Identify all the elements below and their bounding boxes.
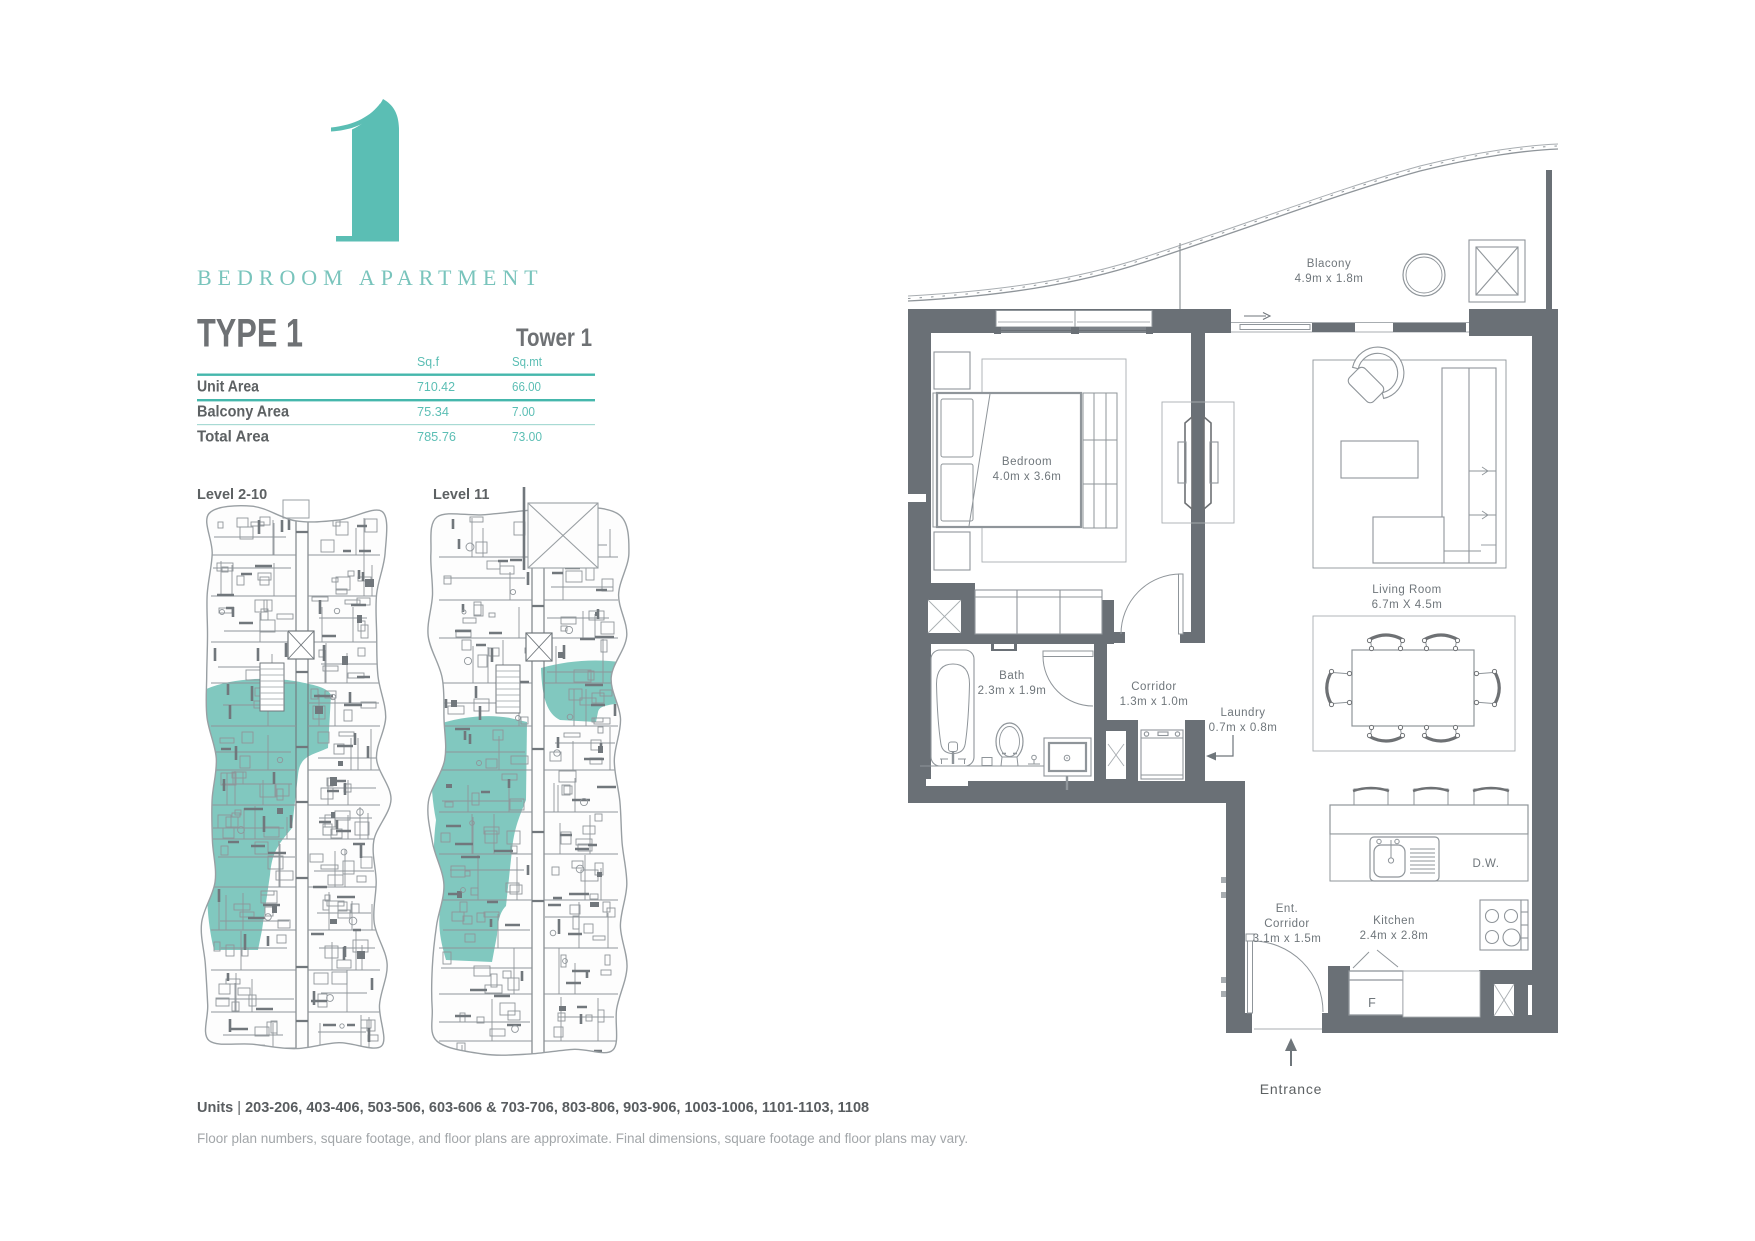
svg-text:Corridor: Corridor	[1131, 681, 1177, 693]
svg-text:Living Room: Living Room	[1372, 584, 1441, 596]
svg-text:Bath: Bath	[999, 670, 1025, 682]
svg-text:2.4m x 2.8m: 2.4m x 2.8m	[1360, 930, 1429, 942]
svg-text:4.0m x 3.6m: 4.0m x 3.6m	[993, 471, 1062, 483]
svg-text:2.3m x 1.9m: 2.3m x 1.9m	[978, 685, 1047, 697]
svg-text:3.1m x 1.5m: 3.1m x 1.5m	[1253, 933, 1322, 945]
svg-text:Blacony: Blacony	[1307, 258, 1351, 270]
svg-text:Kitchen: Kitchen	[1373, 915, 1415, 927]
svg-text:Sq.f: Sq.f	[417, 354, 439, 369]
svg-text:4.9m x 1.8m: 4.9m x 1.8m	[1295, 273, 1364, 285]
svg-text:D.W.: D.W.	[1473, 858, 1500, 870]
svg-text:Total Area: Total Area	[197, 429, 269, 446]
svg-text:Unit Area: Unit Area	[197, 379, 259, 396]
svg-text:66.00: 66.00	[512, 379, 541, 394]
svg-text:Floor plan numbers, square foo: Floor plan numbers, square footage, and …	[197, 1131, 968, 1146]
svg-text:0.7m x 0.8m: 0.7m x 0.8m	[1209, 722, 1278, 734]
svg-text:TYPE 1: TYPE 1	[197, 312, 303, 356]
svg-text:Units | 203-206, 403-406, 503-: Units | 203-206, 403-406, 503-506, 603-6…	[197, 1100, 869, 1116]
svg-text:Balcony Area: Balcony Area	[197, 404, 289, 421]
svg-text:Tower 1: Tower 1	[516, 324, 592, 352]
svg-text:1.3m x 1.0m: 1.3m x 1.0m	[1120, 696, 1189, 708]
svg-text:785.76: 785.76	[417, 429, 456, 444]
svg-text:Bedroom: Bedroom	[1002, 456, 1052, 468]
svg-text:Sq.mt: Sq.mt	[512, 354, 542, 369]
svg-text:Ent.: Ent.	[1276, 903, 1298, 915]
svg-text:6.7m X 4.5m: 6.7m X 4.5m	[1372, 599, 1443, 611]
svg-text:710.42: 710.42	[417, 379, 455, 394]
svg-text:Level 11: Level 11	[433, 487, 489, 503]
svg-text:75.34: 75.34	[417, 404, 449, 419]
svg-text:BEDROOM APARTMENT: BEDROOM APARTMENT	[197, 265, 545, 290]
svg-text:Entrance: Entrance	[1260, 1081, 1322, 1097]
svg-text:F: F	[1368, 996, 1376, 1010]
svg-text:73.00: 73.00	[512, 429, 542, 444]
svg-text:7.00: 7.00	[512, 404, 535, 419]
svg-text:Level 2-10: Level 2-10	[197, 487, 267, 503]
svg-text:Laundry: Laundry	[1220, 707, 1265, 719]
svg-text:Corridor: Corridor	[1264, 918, 1310, 930]
